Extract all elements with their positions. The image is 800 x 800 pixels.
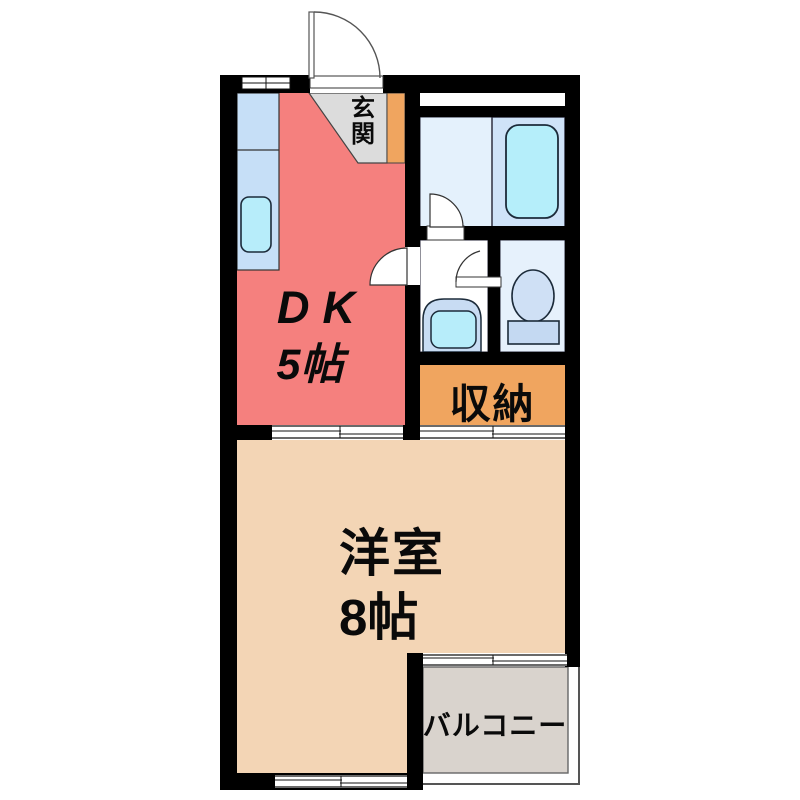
wall-under-bath-window <box>417 106 565 117</box>
western-room-label: 洋室 <box>339 512 445 586</box>
wall-right <box>565 75 580 667</box>
bathroom-door-leaf <box>427 226 464 240</box>
toilet-door-leaf <box>456 277 501 287</box>
bathtub <box>506 125 558 218</box>
wall-washroom-toilet <box>488 240 500 352</box>
balcony-label: バルコニー <box>419 704 571 744</box>
shoe-cabinet <box>387 93 405 163</box>
entrance-threshold <box>310 76 383 88</box>
floor-plan-canvas <box>0 0 800 800</box>
entrance-door-leaf <box>309 12 314 78</box>
entrance-door-arc <box>314 12 380 78</box>
floor-plan-image: 玄関 DK 5帖 収納 洋室 8帖 バルコニー <box>0 0 800 800</box>
western-room-size-label: 8帖 <box>339 576 418 650</box>
washbasin-bowl <box>431 311 476 348</box>
wall-dk-bottom-left <box>220 425 272 440</box>
kitchen-sink <box>241 197 271 252</box>
wall-pier-center <box>403 425 420 440</box>
toilet-tank <box>508 321 559 344</box>
wall-above-storage <box>405 352 565 365</box>
toilet <box>512 270 554 322</box>
balcony-window <box>423 654 567 666</box>
entrance-label: 玄関 <box>349 96 377 148</box>
dk-room-sliding-partition <box>272 425 403 439</box>
dk-size-label: 5帖 <box>237 330 383 392</box>
storage-label: 収納 <box>420 370 565 430</box>
dk-label: DK <box>237 282 395 334</box>
